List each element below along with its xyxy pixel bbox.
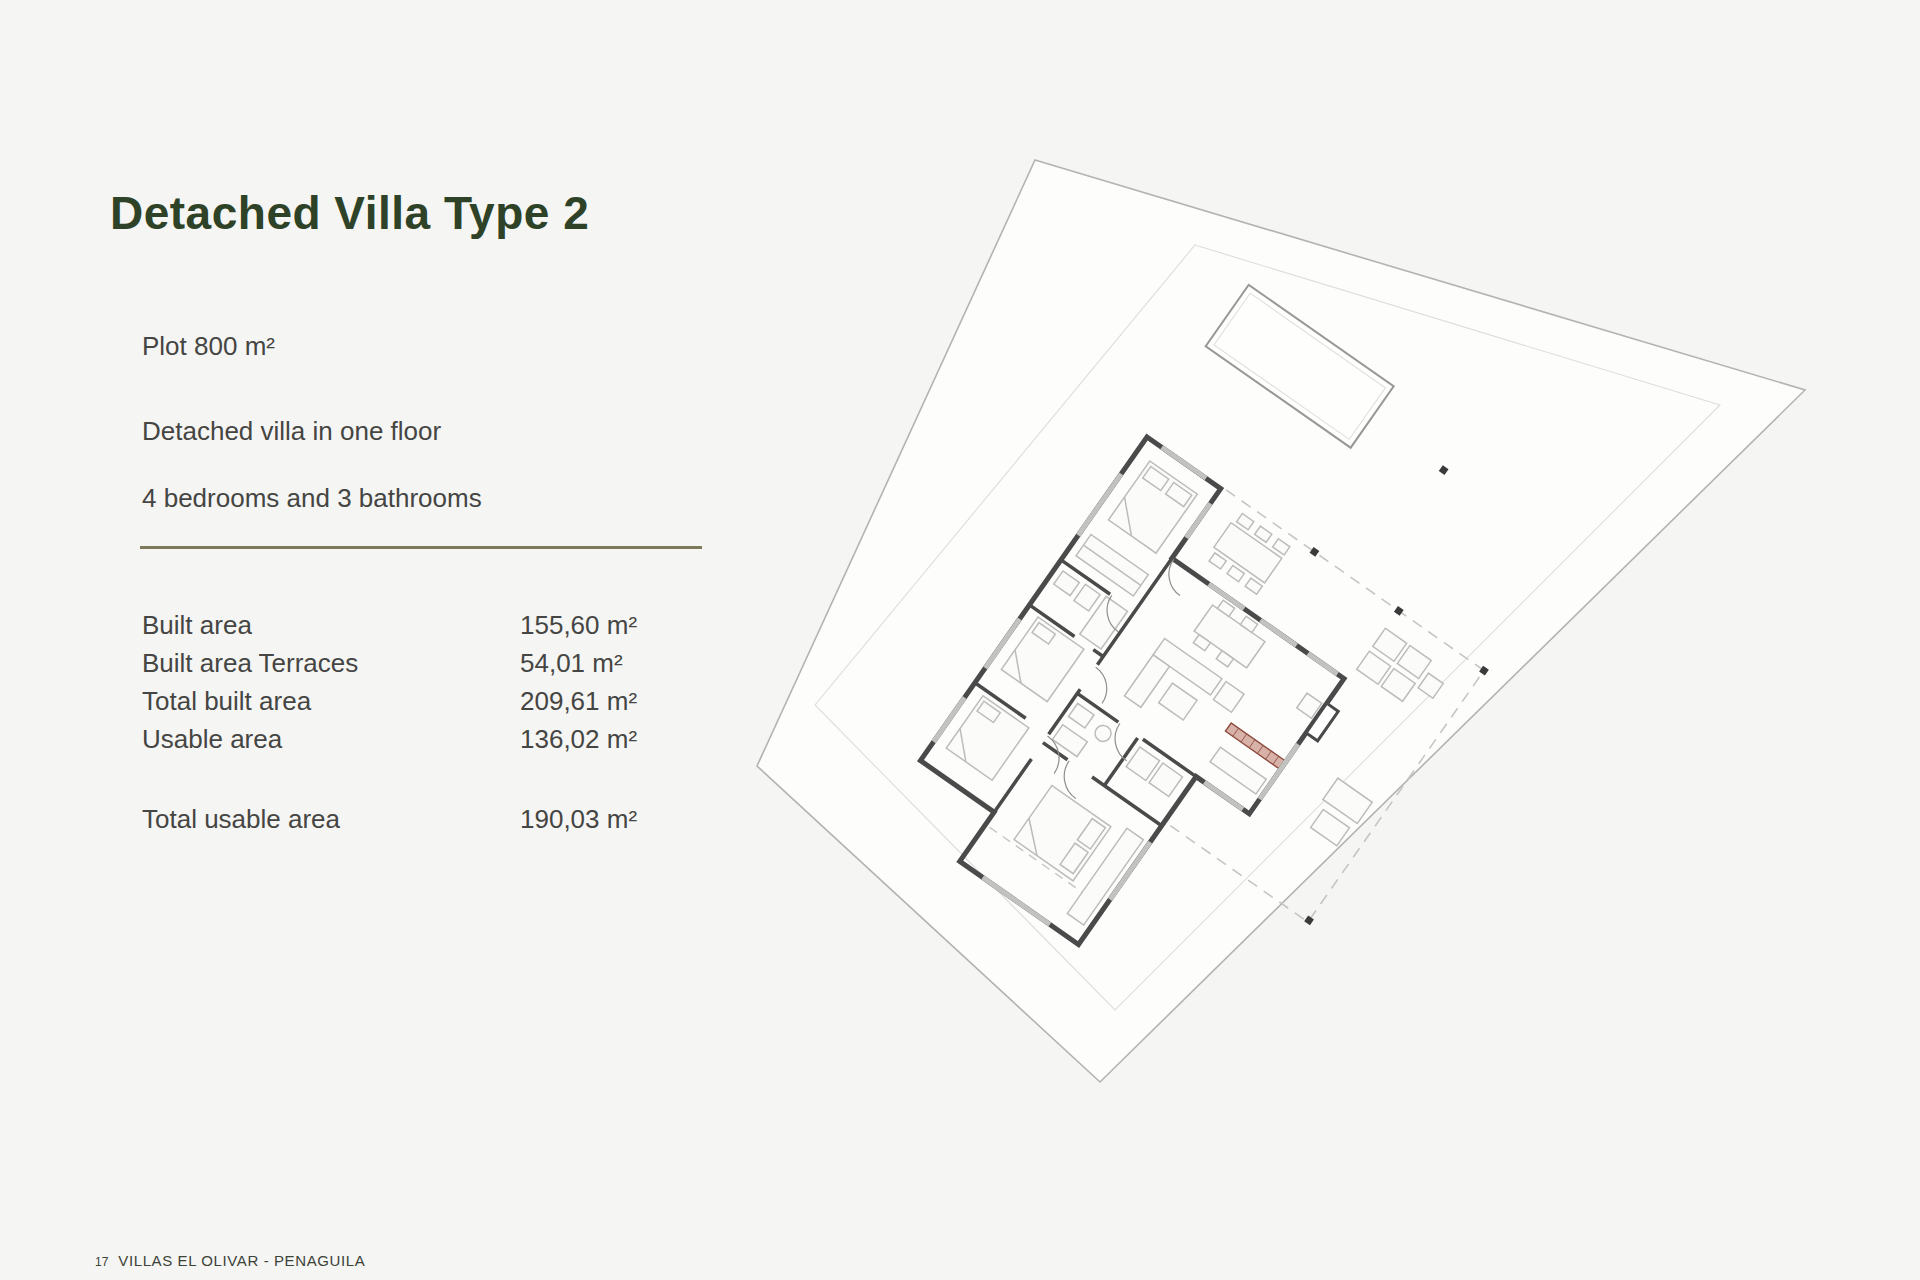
plot-boundary bbox=[757, 160, 1805, 1082]
site-plan bbox=[0, 0, 1920, 1280]
